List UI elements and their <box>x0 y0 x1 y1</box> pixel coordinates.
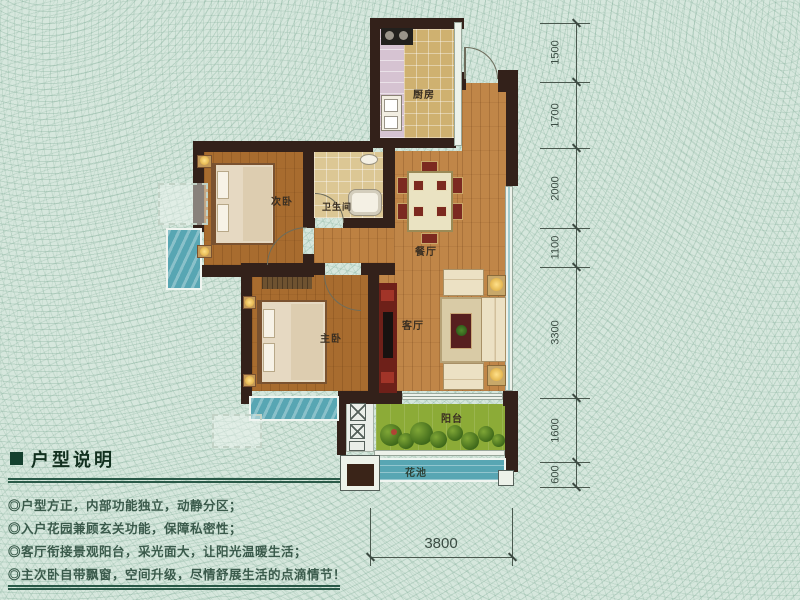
dimension-extension <box>540 487 590 488</box>
dimension-extension <box>540 462 590 463</box>
room-label-balcony: 阳台 <box>441 410 463 425</box>
kitchen-partition-wall <box>454 22 462 146</box>
hallway-floor <box>314 228 394 263</box>
kitchen-floor <box>404 29 454 138</box>
sofa <box>481 297 506 362</box>
plant <box>461 432 479 450</box>
pillow <box>263 309 275 338</box>
sliding-door <box>402 393 503 400</box>
lamp <box>200 156 209 165</box>
plant <box>430 431 447 448</box>
dimension-extension <box>540 267 590 268</box>
dimension-value: 3300 <box>549 313 564 353</box>
lamp <box>490 368 503 381</box>
blanket <box>291 304 323 380</box>
place-setting <box>413 206 424 217</box>
decor <box>381 290 394 301</box>
description-bullet: ◎客厅衔接景观阳台，采光面大，让阳光温暖生活； <box>8 541 307 560</box>
description-bullet: ◎户型方正，内部功能独立，动静分区； <box>8 495 242 514</box>
blanket <box>243 167 272 241</box>
dimension-extension <box>540 228 590 229</box>
room-label-master-bedroom: 主卧 <box>320 330 342 345</box>
balcony-rail <box>374 450 505 456</box>
divider-line <box>8 585 340 590</box>
entry-door-arc <box>466 47 498 79</box>
wall-segment <box>370 18 380 148</box>
description-bullet: ◎主次卧自带飘窗，空间升级，尽情舒展生活的点滴情节！ <box>8 564 346 583</box>
dimension-value: 1700 <box>549 96 564 136</box>
ac-platform <box>212 414 262 448</box>
wall-segment <box>303 141 314 221</box>
place-setting <box>436 180 447 191</box>
loveseat <box>443 269 484 296</box>
dimension-value: 2000 <box>549 169 564 209</box>
dimension-extension <box>540 148 590 149</box>
wash-basin <box>360 154 378 165</box>
entry-door-leaf <box>464 47 466 79</box>
wall-segment <box>193 141 373 152</box>
living-window <box>505 186 513 391</box>
sink-basin <box>384 99 398 112</box>
secondary-bedroom-bay-window <box>166 228 202 290</box>
pillow <box>217 204 229 232</box>
room-label-flower-bed: 花池 <box>405 464 427 479</box>
dimension-value: 1600 <box>549 411 564 451</box>
dimension-line-right <box>576 23 577 487</box>
water-heater-symbol <box>350 403 366 421</box>
utility-box <box>349 441 365 451</box>
wall-segment <box>383 141 395 228</box>
room-label-dining: 餐厅 <box>415 243 437 258</box>
flower-bed-strip <box>378 458 506 482</box>
dimension-line-bottom <box>370 557 513 558</box>
stove-burner <box>385 31 394 40</box>
loveseat <box>443 363 484 390</box>
pillow <box>217 171 229 199</box>
description-title: 户型说明 <box>31 446 115 472</box>
dimension-value: 1100 <box>549 228 564 268</box>
plant <box>492 434 505 447</box>
floor-drain-symbol <box>350 424 365 439</box>
dimension-extension <box>540 23 590 24</box>
sink-basin <box>384 116 398 129</box>
lamp <box>245 298 254 307</box>
wall-segment <box>498 70 518 92</box>
description-bullet: ◎入户花园兼顾玄关功能，保障私密性； <box>8 518 242 537</box>
stove-burner <box>399 31 408 40</box>
place-setting <box>413 180 424 191</box>
room-label-kitchen: 厨房 <box>413 86 435 101</box>
wall-segment <box>505 398 518 472</box>
divider-line <box>8 478 340 483</box>
title-square-icon <box>10 452 23 465</box>
dimension-extension <box>540 82 590 83</box>
dimension-value: 1500 <box>549 33 564 73</box>
table-plant <box>456 325 467 336</box>
bathtub <box>348 189 382 216</box>
floor-plan-page: 厨房 次卧 卫生间 餐厅 主卧 客厅 阳台 花池 1500 1700 2000 … <box>0 0 800 600</box>
dining-chair <box>452 203 463 220</box>
lamp <box>490 278 503 291</box>
ac-platform <box>158 183 208 225</box>
lamp <box>200 247 209 256</box>
place-setting <box>436 206 447 217</box>
dimension-extension <box>540 398 590 399</box>
lamp <box>245 376 254 385</box>
flower-accent <box>391 429 397 435</box>
equipment-unit <box>347 464 374 486</box>
room-label-secondary-bedroom: 次卧 <box>271 193 293 208</box>
dining-chair <box>452 177 463 194</box>
dimension-value: 600 <box>549 455 564 495</box>
pillow <box>263 343 275 372</box>
dimension-value-bottom: 3800 <box>406 536 476 551</box>
room-label-living: 客厅 <box>402 317 424 332</box>
decor <box>381 372 394 383</box>
room-label-bathroom: 卫生间 <box>322 200 352 213</box>
corner-pillar-cap <box>498 470 514 486</box>
tv <box>383 312 393 358</box>
wall-segment <box>368 273 379 395</box>
wardrobe <box>262 277 312 289</box>
master-bedroom-bay-window <box>249 396 339 421</box>
wall-segment <box>506 90 518 186</box>
